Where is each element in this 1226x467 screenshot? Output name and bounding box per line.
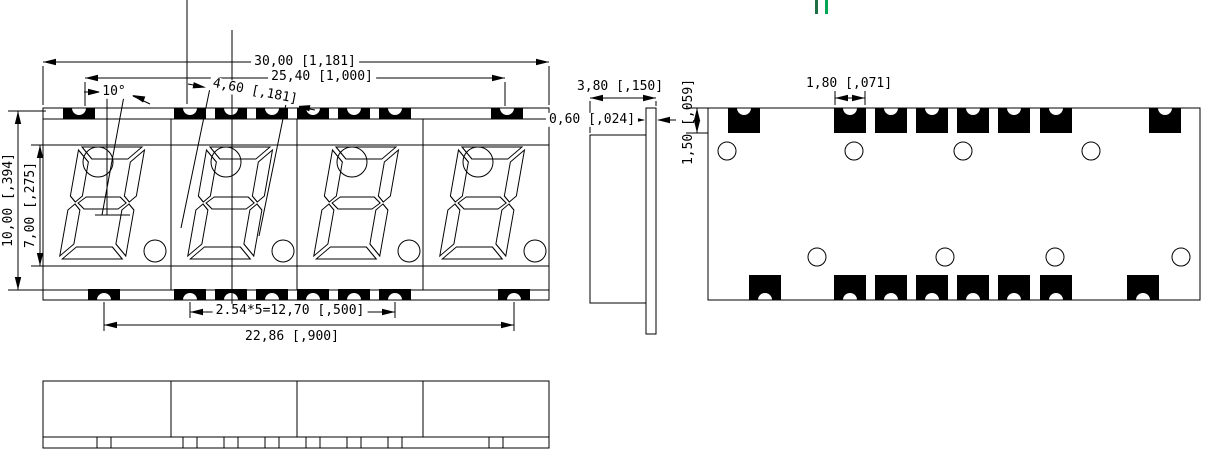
dim-pad-width-lines	[835, 91, 865, 105]
back-top-pad-row	[728, 108, 1181, 133]
digit-cell-1	[59, 147, 166, 262]
dim-depth-label: 3,80 [,150]	[574, 80, 666, 94]
substrate-slab	[646, 108, 656, 334]
front-bottom-pad-row	[88, 289, 530, 300]
dim-pad-row-span-label: 22,86 [,900]	[242, 330, 342, 344]
decimal-point-outline	[398, 240, 420, 262]
bottom-view	[43, 381, 549, 448]
corner-hole	[463, 147, 493, 177]
dim-digit-height-label: 7,00 [,275]	[24, 162, 38, 248]
technical-drawing-page: 30,00 [1,181] 25,40 [1,000] 10° 4,60 [,1…	[0, 0, 1226, 467]
corner-hole	[83, 147, 113, 177]
dim-pin-pitch-label: 2.54*5=12,70 [,500]	[213, 304, 368, 318]
back-body-outline	[708, 108, 1200, 300]
front-top-pad-row	[63, 108, 523, 119]
dim-pad-width-label: 1,80 [,071]	[803, 77, 895, 91]
dim-substrate-thickness-lines	[632, 117, 676, 123]
digit-cell-2	[187, 147, 294, 262]
front-body-outline	[43, 108, 549, 300]
digit-cell-4	[439, 147, 546, 262]
seven-segment-digit	[59, 147, 145, 259]
seven-segment-digit	[187, 147, 273, 259]
back-through-holes	[718, 142, 1190, 266]
seven-segment-digit	[313, 147, 399, 259]
decimal-point-outline	[524, 240, 546, 262]
front-view	[8, 0, 549, 331]
dim-pad-height-label: 1,50 [,059]	[682, 79, 696, 165]
digit-cell-3	[313, 147, 420, 262]
seven-segment-digit	[439, 147, 525, 259]
side-view	[590, 95, 676, 334]
dim-substrate-thickness-label: 0,60 [,024]	[546, 113, 638, 127]
corner-hole	[337, 147, 367, 177]
drawing-canvas	[0, 0, 1226, 467]
centerlines	[187, 0, 232, 312]
decimal-point-outline	[272, 240, 294, 262]
side-body-outline	[590, 108, 656, 334]
dim-body-height-label: 10,00 [,394]	[2, 153, 16, 247]
bottom-pad-strip	[43, 437, 549, 448]
back-bottom-pad-row	[749, 275, 1159, 300]
back-view	[686, 91, 1200, 300]
decimal-point-outline	[144, 240, 166, 262]
corner-hole	[211, 147, 241, 177]
green-mark-artifact	[815, 0, 828, 14]
dim-tilt-angle-label: 10°	[99, 85, 128, 99]
bottom-pad-ticks	[97, 437, 503, 448]
dim-total-width-label: 30,00 [1,181]	[251, 55, 359, 69]
dim-pin-span-label: 25,40 [1,000]	[268, 70, 376, 84]
